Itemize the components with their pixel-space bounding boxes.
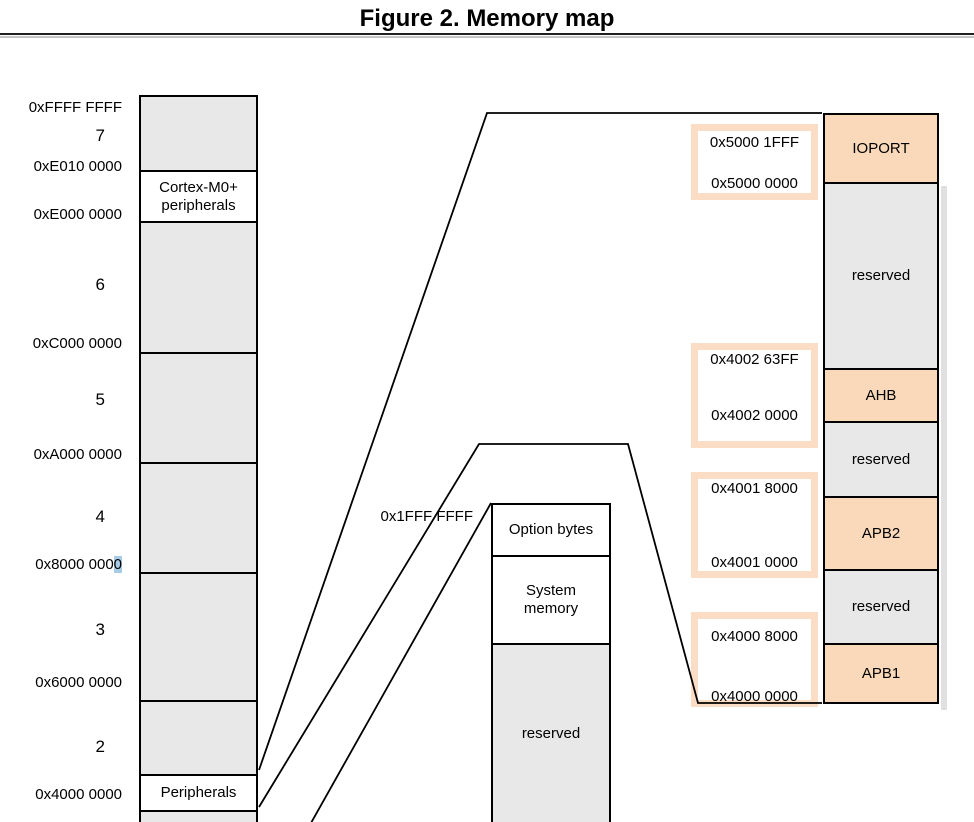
address-label-c000-0000: 0xC000 0000 [12, 334, 122, 354]
figure-caption: Figure 2. Memory map [0, 5, 974, 33]
caption-rule-light [0, 36, 974, 38]
address-label-e000-0000: 0xE000 0000 [12, 205, 122, 225]
region-number-5: 5 [12, 389, 105, 411]
address-label-1fff-ffff: 0x1FFF FFFF [363, 507, 473, 527]
region-number-6: 6 [12, 274, 105, 296]
apb2-block: APB2 [825, 496, 937, 569]
range-bottom-address: 0x5000 0000 [698, 174, 811, 194]
address-label-6000-0000: 0x6000 0000 [12, 673, 122, 693]
address-label-a000-0000: 0xA000 0000 [12, 445, 122, 465]
address-range-box-apb1: 0x4000 8000 0x4000 0000 [691, 612, 818, 707]
peripheral-reserved-label-3: reserved [852, 598, 910, 616]
address-range-box-apb2: 0x4001 8000 0x4001 0000 [691, 472, 818, 578]
system-memory-block: System memory [493, 555, 609, 643]
flash-reserved-label: reserved [522, 725, 580, 743]
peripheral-reserved-block-2: reserved [825, 421, 937, 496]
peripherals-label: Peripherals [161, 784, 237, 802]
range-top-address: 0x4002 63FF [698, 350, 811, 370]
flash-reserved-block: reserved [493, 643, 609, 822]
region-5-block [141, 352, 256, 462]
address-range-box-ahb: 0x4002 63FF 0x4002 0000 [691, 343, 818, 448]
address-label-4000-0000: 0x4000 0000 [12, 785, 122, 805]
flash-detail-column: Option bytes System memory reserved [491, 503, 611, 822]
apb1-block: APB1 [825, 643, 937, 702]
cortex-peripherals-block: Cortex-M0+ peripherals [141, 170, 256, 221]
range-bottom-address: 0x4000 0000 [698, 687, 811, 707]
ahb-label: AHB [866, 387, 897, 405]
apb2-label: APB2 [862, 525, 900, 543]
memory-map-figure: Figure 2. Memory map Cortex-M0+ peripher… [0, 0, 974, 822]
system-memory-label: System memory [509, 582, 593, 618]
region-number-3: 3 [12, 619, 105, 641]
system-memory-column: Cortex-M0+ peripherals Peripherals [139, 95, 258, 822]
peripheral-reserved-label-1: reserved [852, 267, 910, 285]
region-1-block [141, 810, 256, 822]
range-top-address: 0x4001 8000 [698, 479, 811, 499]
peripheral-detail-column: IOPORT reserved AHB reserved APB2 reserv… [823, 113, 939, 704]
region-6-block [141, 221, 256, 352]
address-label-e010-0000: 0xE010 0000 [12, 157, 122, 177]
region-4-block [141, 462, 256, 572]
peripheral-column-shadow [941, 186, 947, 710]
apb1-label: APB1 [862, 665, 900, 683]
ioport-label: IOPORT [852, 140, 909, 158]
range-top-address: 0x4000 8000 [698, 627, 811, 647]
range-bottom-address: 0x4001 0000 [698, 553, 811, 573]
address-label-8000-0000: 0x8000 0000 [12, 555, 122, 575]
address-label-ffff-ffff: 0xFFFF FFFF [12, 98, 122, 118]
ioport-block: IOPORT [825, 115, 937, 182]
peripheral-reserved-block-3: reserved [825, 569, 937, 643]
region-number-2: 2 [12, 736, 105, 758]
region-3-block [141, 572, 256, 700]
region-number-7: 7 [12, 125, 105, 147]
address-8000-prefix: 0x8000 000 [35, 556, 113, 573]
cortex-peripherals-label: Cortex-M0+ peripherals [147, 179, 251, 215]
option-bytes-block: Option bytes [493, 505, 609, 555]
ahb-block: AHB [825, 368, 937, 421]
address-range-box-ioport: 0x5000 1FFF 0x5000 0000 [691, 124, 818, 200]
region-2-block [141, 700, 256, 774]
region-7-block [141, 97, 256, 170]
option-bytes-label: Option bytes [509, 521, 593, 539]
peripheral-reserved-block-1: reserved [825, 182, 937, 368]
peripherals-block: Peripherals [141, 774, 256, 810]
peripheral-reserved-label-2: reserved [852, 451, 910, 469]
range-bottom-address: 0x4002 0000 [698, 406, 811, 426]
caption-rule-dark [0, 33, 974, 35]
region-number-4: 4 [12, 506, 105, 528]
address-8000-highlighted-char: 0 [114, 556, 122, 573]
range-top-address: 0x5000 1FFF [698, 133, 811, 153]
